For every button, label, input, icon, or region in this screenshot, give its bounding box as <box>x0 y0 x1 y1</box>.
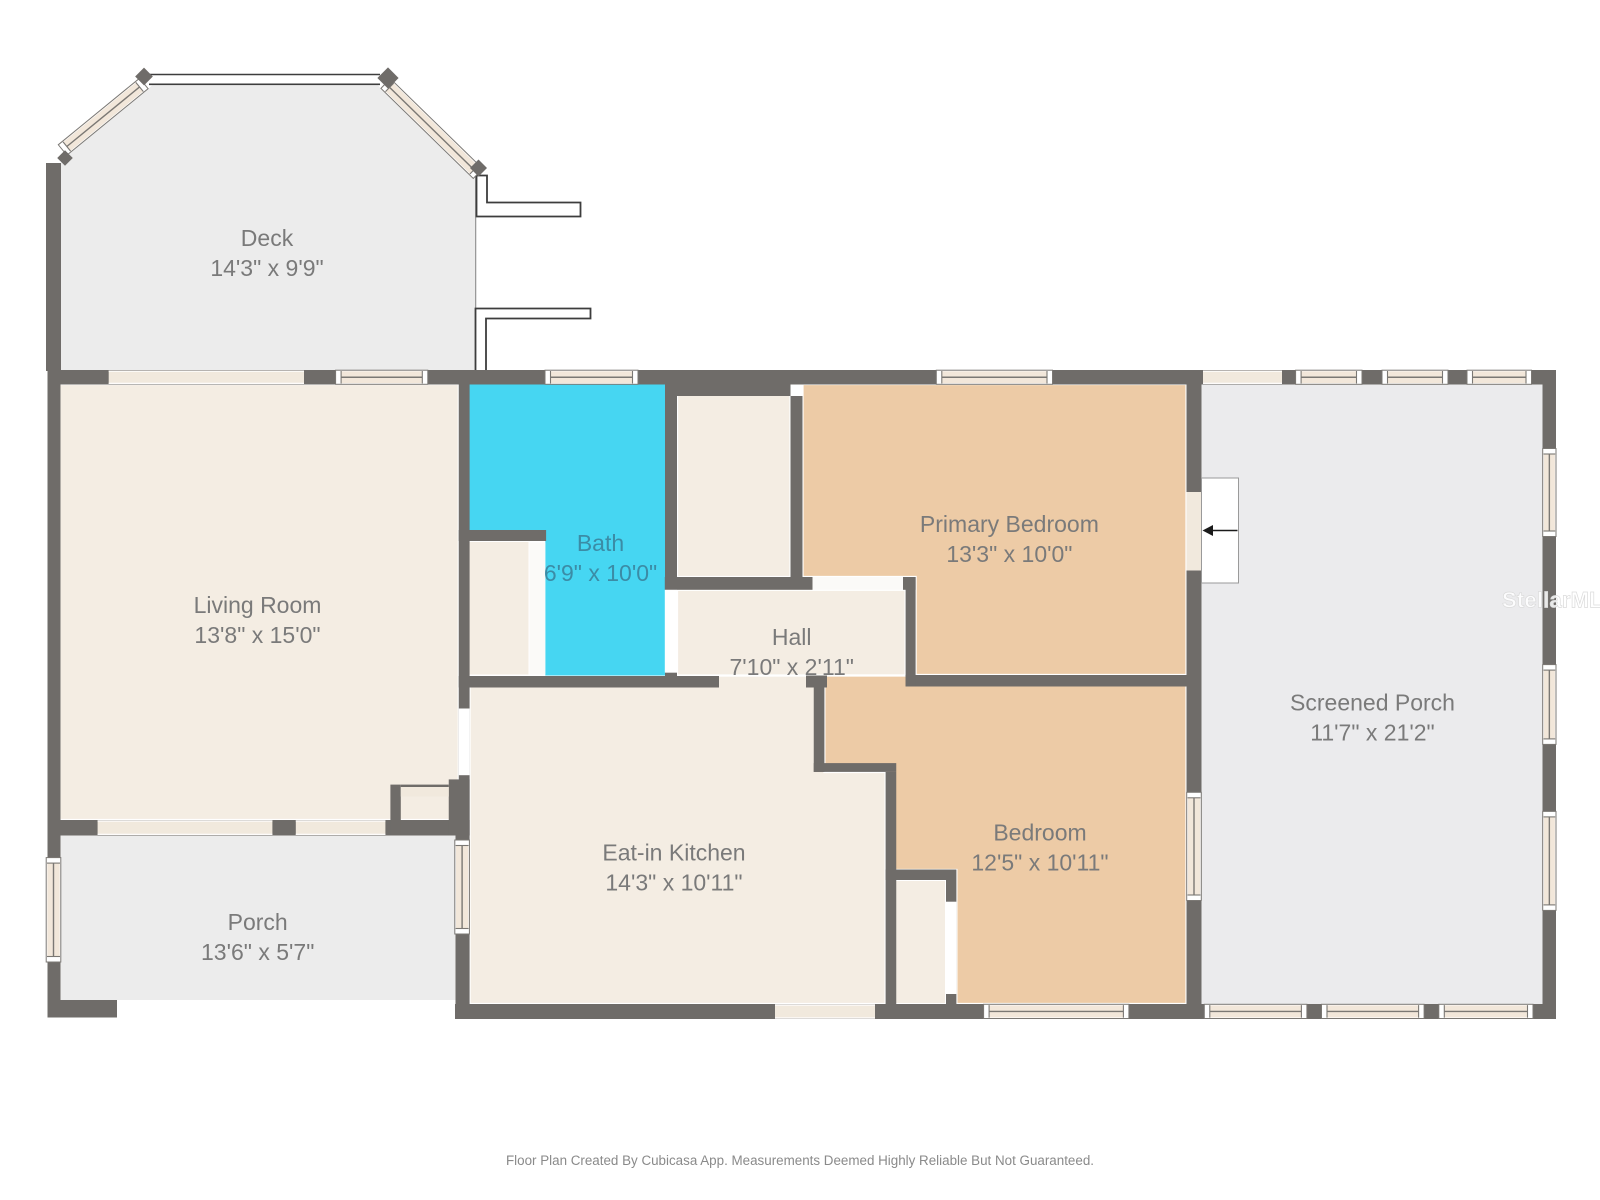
svg-text:Living Room: Living Room <box>194 592 322 618</box>
svg-text:Screened Porch: Screened Porch <box>1290 690 1455 716</box>
svg-text:Porch: Porch <box>228 909 288 935</box>
svg-text:StellarMLS: StellarMLS <box>1502 588 1600 613</box>
svg-text:14'3" x 10'11": 14'3" x 10'11" <box>605 870 742 896</box>
svg-text:13'6" x 5'7": 13'6" x 5'7" <box>201 939 314 965</box>
svg-text:Hall: Hall <box>772 624 812 650</box>
svg-text:Bedroom: Bedroom <box>993 820 1086 846</box>
svg-text:14'3" x 9'9": 14'3" x 9'9" <box>210 255 323 281</box>
svg-text:Floor Plan Created By Cubicasa: Floor Plan Created By Cubicasa App. Meas… <box>506 1153 1094 1168</box>
svg-text:Eat-in Kitchen: Eat-in Kitchen <box>602 840 745 866</box>
svg-text:12'5" x 10'11": 12'5" x 10'11" <box>971 850 1108 876</box>
svg-text:6'9" x 10'0": 6'9" x 10'0" <box>544 560 657 586</box>
svg-text:Primary Bedroom: Primary Bedroom <box>920 511 1099 537</box>
svg-text:13'8" x 15'0": 13'8" x 15'0" <box>194 622 320 648</box>
svg-text:Bath: Bath <box>577 530 624 556</box>
svg-text:7'10" x 2'11": 7'10" x 2'11" <box>729 654 853 680</box>
svg-text:13'3" x 10'0": 13'3" x 10'0" <box>946 541 1072 567</box>
svg-text:Deck: Deck <box>241 225 294 251</box>
svg-text:11'7" x 21'2": 11'7" x 21'2" <box>1310 720 1434 746</box>
